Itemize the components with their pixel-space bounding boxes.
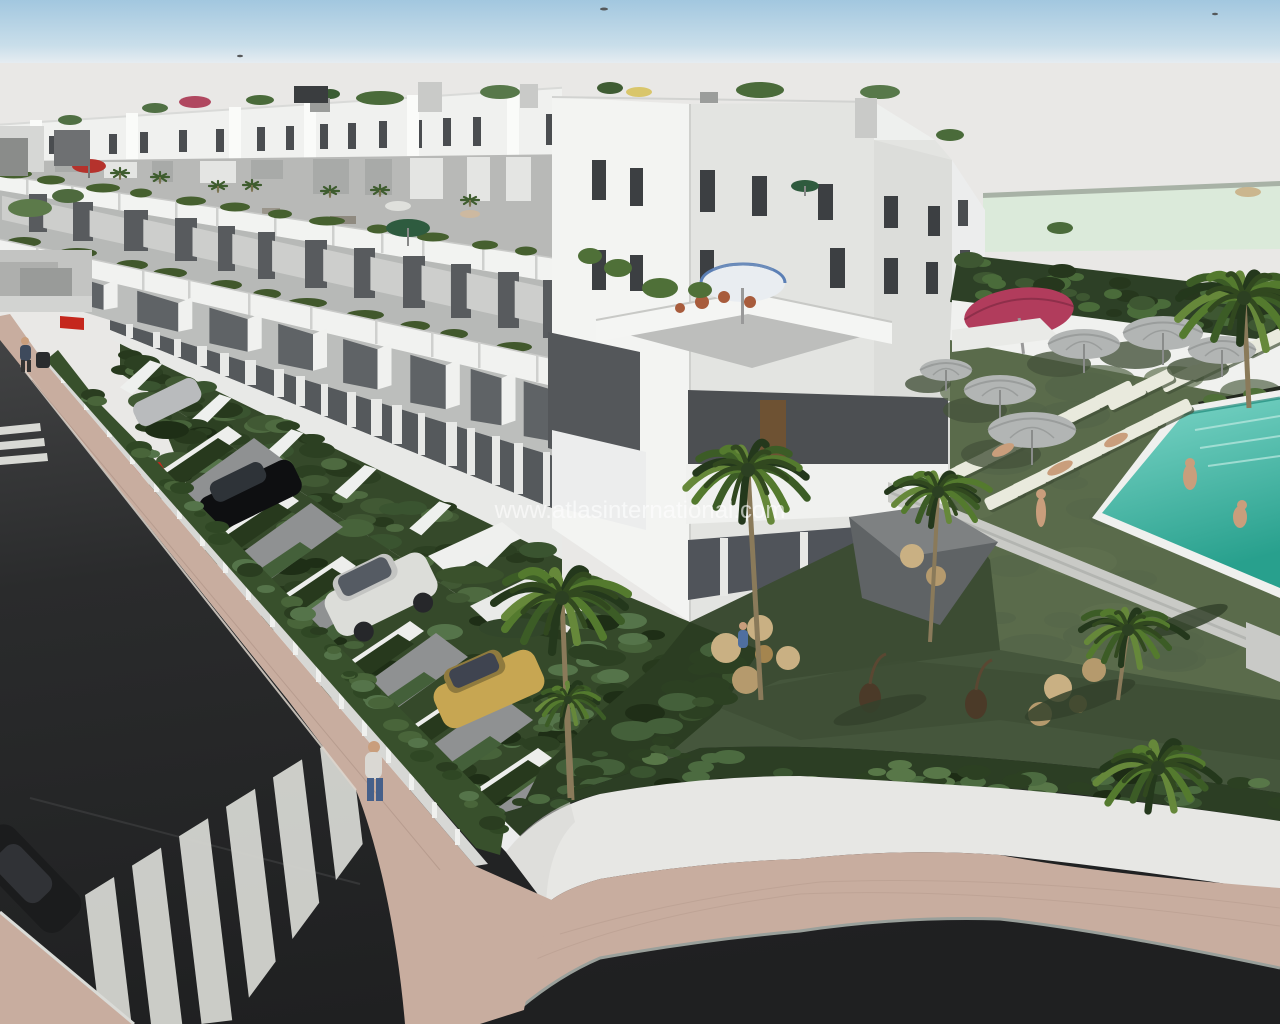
svg-text:www.atlasinternational.com: www.atlasinternational.com [494, 497, 786, 524]
